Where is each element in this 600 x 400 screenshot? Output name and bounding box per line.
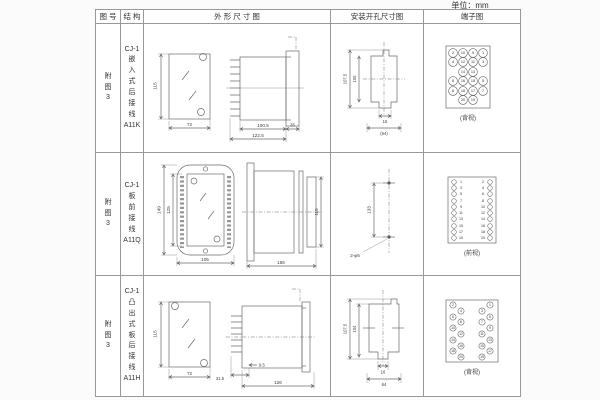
- svg-text:8: 8: [460, 320, 462, 324]
- svg-text:12: 12: [459, 332, 463, 336]
- fig-no-a11h: 附 图 3: [96, 276, 121, 397]
- mounting-drawing-a11h: 107.5 104 16 64: [331, 276, 423, 396]
- terminal-diagram-a11q: 1234567891011121314151617181920 (前视): [424, 153, 520, 275]
- svg-text:10: 10: [481, 205, 485, 209]
- dim-mount-slot: 16: [383, 119, 388, 124]
- svg-text:11: 11: [480, 332, 484, 336]
- dim-side-height: 115: [314, 208, 319, 216]
- svg-text:3: 3: [481, 309, 483, 313]
- svg-text:15: 15: [480, 344, 484, 348]
- dim-side-length: 126: [274, 380, 282, 385]
- svg-text:4: 4: [460, 309, 462, 313]
- dim-front-height: 115: [153, 82, 158, 90]
- fig-no-a11k: 附 图 3: [96, 24, 121, 153]
- mounting-cell-a11h: 107.5 104 16 64: [331, 276, 424, 397]
- svg-text:3: 3: [460, 186, 462, 190]
- dim-gap: 9.5: [259, 363, 265, 368]
- dim-front-inner: 125: [166, 206, 171, 214]
- fig-no-a11q: 附 图 3: [96, 153, 121, 276]
- svg-text:8: 8: [482, 199, 484, 203]
- svg-text:20: 20: [461, 98, 465, 102]
- svg-text:5: 5: [482, 79, 484, 83]
- svg-text:14: 14: [451, 338, 455, 342]
- svg-text:18: 18: [461, 89, 465, 93]
- svg-text:2: 2: [452, 51, 454, 55]
- svg-text:14: 14: [461, 70, 465, 74]
- dim-side-length: 156: [277, 260, 285, 265]
- terminal-diagram-a11k: 2109141211314136161558181772019 (背视): [424, 24, 520, 152]
- dim-mount-span: 64: [382, 382, 387, 387]
- svg-text:19: 19: [459, 236, 463, 240]
- svg-text:6: 6: [452, 79, 454, 83]
- svg-text:19: 19: [480, 355, 484, 359]
- view-label: (前视): [464, 249, 480, 257]
- dim-front-width: 105: [201, 257, 209, 262]
- outline-cell-a11k: 115 72 100.5 122.5 35: [144, 24, 331, 153]
- svg-text:2: 2: [482, 180, 484, 184]
- svg-text:12: 12: [461, 60, 465, 64]
- svg-text:13: 13: [459, 217, 463, 221]
- svg-text:16: 16: [461, 79, 465, 83]
- dim-mount-span: (64): [380, 131, 388, 136]
- terminal-cell-a11k: 2109141211314136161558181772019 (背视): [424, 24, 521, 153]
- dim-hole-span: 133: [367, 206, 372, 214]
- svg-text:1: 1: [489, 303, 491, 307]
- svg-text:8: 8: [452, 89, 454, 93]
- svg-text:1: 1: [460, 180, 462, 184]
- mounting-drawing-a11q: 133 2-φ6: [331, 153, 423, 275]
- terminal-cell-a11q: 1234567891011121314151617181920 (前视): [424, 153, 521, 276]
- svg-text:10: 10: [451, 326, 455, 330]
- svg-text:20: 20: [459, 355, 463, 359]
- svg-text:9: 9: [460, 205, 462, 209]
- svg-text:6: 6: [482, 192, 484, 196]
- header-mounting: 安装开孔尺寸图: [331, 10, 424, 24]
- structure-a11q: CJ-1 板 前 接 线 A11Q: [121, 153, 144, 276]
- svg-text:20: 20: [481, 236, 485, 240]
- outline-drawing-a11q: 149 125 105 156 115: [144, 153, 330, 275]
- view-label: (背视): [460, 114, 476, 122]
- svg-text:15: 15: [459, 224, 463, 228]
- svg-text:12: 12: [481, 211, 485, 215]
- svg-text:17: 17: [459, 230, 463, 234]
- outline-cell-a11h: 115 72 31.5 9.5 126: [144, 276, 331, 397]
- svg-text:11: 11: [471, 60, 475, 64]
- terminal-diagram-a11h: 2143658710912111413161518172019 (背视): [424, 276, 520, 396]
- dim-side-total: 122.5: [252, 133, 264, 138]
- svg-text:6: 6: [452, 315, 454, 319]
- hole-callout: 2-φ6: [350, 253, 360, 258]
- svg-text:16: 16: [481, 224, 485, 228]
- svg-text:17: 17: [471, 89, 475, 93]
- dim-front-outer: 149: [157, 206, 162, 214]
- terminal-grid: 2143658710912111413161518172019: [450, 302, 493, 360]
- outline-drawing-a11k: 115 72 100.5 122.5 35: [144, 24, 330, 152]
- dim-fin-width: 31.5: [216, 376, 225, 381]
- svg-text:18: 18: [481, 230, 485, 234]
- svg-text:5: 5: [489, 315, 491, 319]
- svg-text:15: 15: [471, 79, 475, 83]
- mounting-drawing-a11k: 107.5 105 16 (64): [331, 24, 423, 152]
- mounting-cell-a11k: 107.5 105 16 (64): [331, 24, 424, 153]
- outline-drawing-a11h: 115 72 31.5 9.5 126: [144, 276, 330, 396]
- svg-text:7: 7: [481, 320, 483, 324]
- dim-mount-inner: 105: [352, 75, 357, 83]
- svg-text:13: 13: [471, 70, 475, 74]
- dim-front-width: 72: [187, 371, 193, 376]
- terminal-grid: 1234567891011121314151617181920: [452, 180, 493, 241]
- structure-a11k: CJ-1 嵌 入 式 后 接 线 A11K: [121, 24, 144, 153]
- svg-text:9: 9: [472, 51, 474, 55]
- svg-text:19: 19: [471, 98, 475, 102]
- svg-text:1: 1: [482, 51, 484, 55]
- svg-text:7: 7: [460, 199, 462, 203]
- svg-text:10: 10: [461, 51, 465, 55]
- svg-text:16: 16: [459, 344, 463, 348]
- svg-text:17: 17: [488, 349, 492, 353]
- svg-text:14: 14: [481, 217, 485, 221]
- dim-mount-slot: 16: [381, 370, 386, 375]
- terminal-grid: 2109141211314136161558181772019: [449, 49, 488, 105]
- header-fig-no: 图 号: [96, 10, 121, 24]
- svg-text:13: 13: [488, 338, 492, 342]
- dim-front-width: 72: [187, 122, 193, 127]
- svg-text:4: 4: [482, 186, 484, 190]
- header-terminal: 端子图: [424, 10, 521, 24]
- svg-text:18: 18: [451, 349, 455, 353]
- terminal-cell-a11h: 2143658710912111413161518172019 (背视): [424, 276, 521, 397]
- dim-side-inner: 100.5: [257, 123, 269, 128]
- dim-side-flange: 35: [290, 123, 295, 128]
- svg-text:9: 9: [489, 326, 491, 330]
- spec-table: 图 号 结 构 外 形 尺 寸 图 安装开孔尺寸图 端子图 附 图 3 CJ-1…: [95, 9, 521, 397]
- dim-front-height: 115: [153, 330, 158, 338]
- svg-text:4: 4: [452, 60, 454, 64]
- svg-text:5: 5: [460, 192, 462, 196]
- mounting-cell-a11q: 133 2-φ6: [331, 153, 424, 276]
- outline-cell-a11q: 149 125 105 156 115: [144, 153, 331, 276]
- dim-mount-outer: 107.5: [343, 73, 348, 84]
- dim-mount-inner: 104: [352, 325, 357, 333]
- view-label: (背视): [464, 368, 480, 376]
- structure-a11h: CJ-1 凸 出 式 板 后 接 线 A11H: [121, 276, 144, 397]
- svg-text:2: 2: [452, 303, 454, 307]
- svg-text:3: 3: [482, 60, 484, 64]
- svg-text:11: 11: [459, 211, 463, 215]
- header-outline: 外 形 尺 寸 图: [144, 10, 331, 24]
- dim-mount-outer: 107.5: [343, 323, 348, 334]
- header-structure: 结 构: [121, 10, 144, 24]
- svg-text:7: 7: [482, 89, 484, 93]
